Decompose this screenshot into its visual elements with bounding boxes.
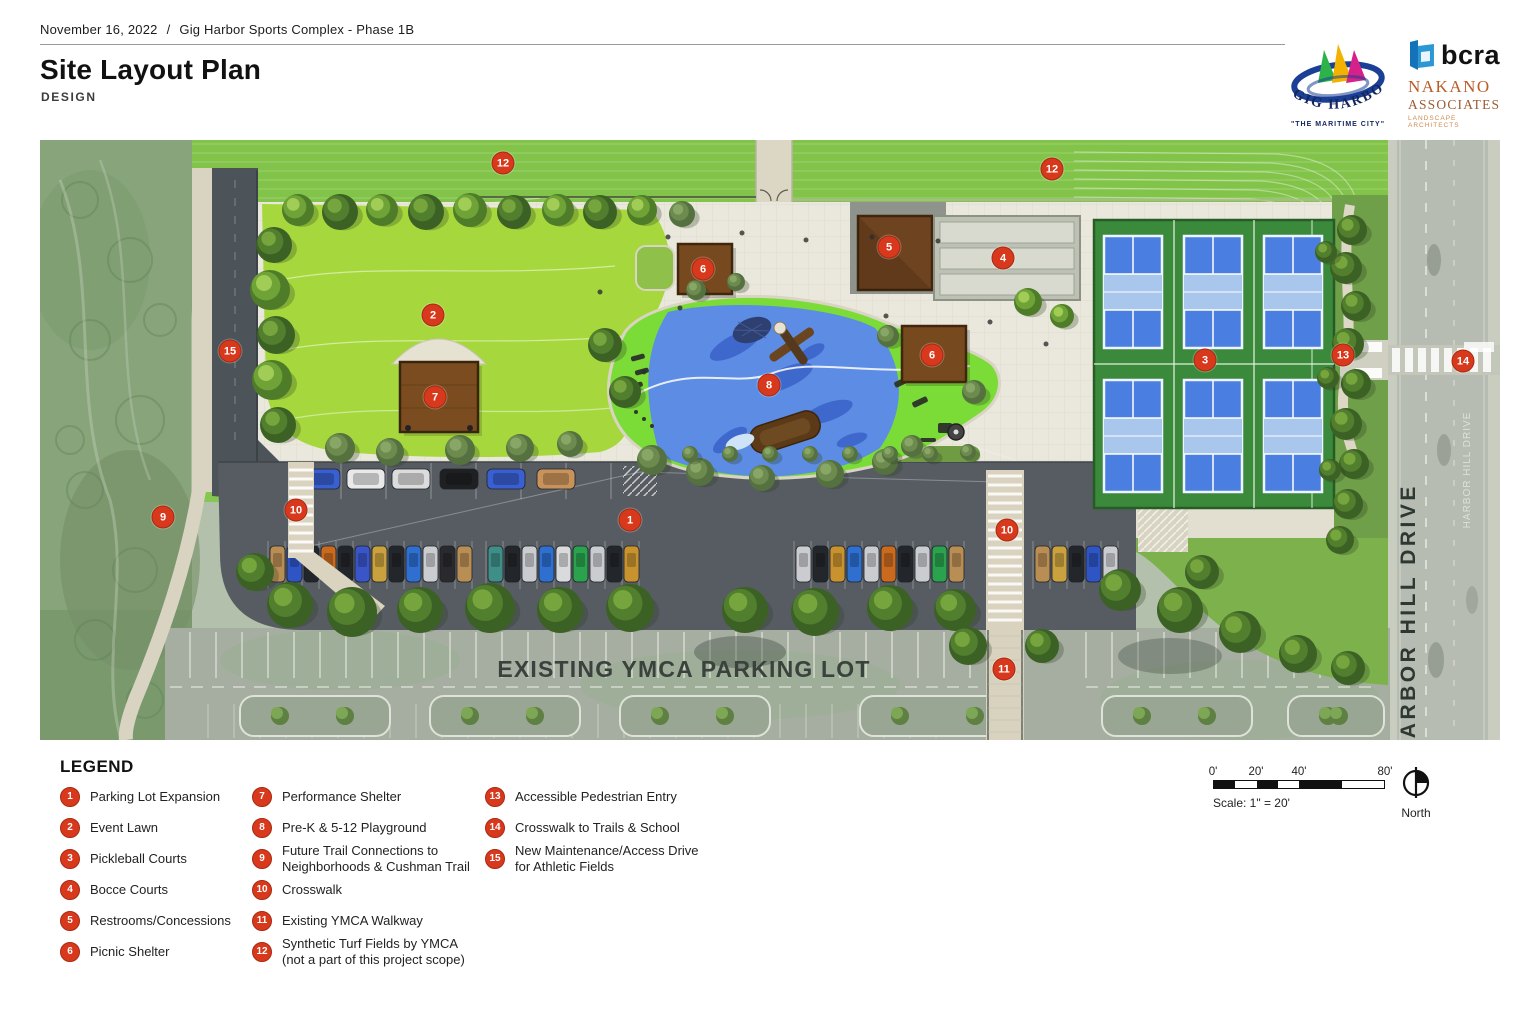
- legend-badge-8: 8: [252, 818, 272, 838]
- legend-item-8: 8Pre-K & 5-12 Playground: [252, 812, 470, 843]
- restrooms-building: [850, 202, 946, 294]
- legend-label-14: Crosswalk to Trails & School: [515, 820, 680, 836]
- legend-badge-13: 13: [485, 787, 505, 807]
- legend-item-15: 15New Maintenance/Access Drivefor Athlet…: [485, 843, 699, 874]
- north-arrow: North: [1396, 766, 1436, 820]
- picnic-shelter-east: [902, 326, 970, 386]
- legend-label-12: Synthetic Turf Fields by YMCA(not a part…: [282, 936, 465, 967]
- ymca-lot-label: EXISTING YMCA PARKING LOT: [497, 656, 870, 682]
- header-rule: [40, 44, 1285, 45]
- legend-label-9: Future Trail Connections toNeighborhoods…: [282, 843, 470, 874]
- legend-label-4: Bocce Courts: [90, 882, 168, 898]
- scale-tick-3: 80': [1378, 766, 1393, 778]
- legend-label-6: Picnic Shelter: [90, 944, 169, 960]
- scale-ticks: 0'20'40'80': [1213, 766, 1385, 780]
- legend-label-7: Performance Shelter: [282, 789, 401, 805]
- nakano-logo-name: NAKANO: [1408, 78, 1500, 97]
- legend-badge-12: 12: [252, 942, 272, 962]
- header-date: November 16, 2022: [40, 22, 158, 37]
- scale-tick-0: 0': [1209, 766, 1218, 778]
- legend-label-15: New Maintenance/Access Drivefor Athletic…: [515, 843, 699, 874]
- legend-badge-14: 14: [485, 818, 505, 838]
- legend-item-5: 5Restrooms/Concessions: [60, 905, 231, 936]
- north-arrow-icon: [1399, 766, 1433, 800]
- bocce-courts-area: [934, 216, 1080, 300]
- bcra-logo-icon: [1408, 40, 1436, 70]
- legend-badge-6: 6: [60, 942, 80, 962]
- scale-bar-graphic: [1213, 780, 1385, 789]
- legend-column-1: 1Parking Lot Expansion2Event Lawn3Pickle…: [60, 781, 231, 967]
- legend-item-11: 11Existing YMCA Walkway: [252, 905, 470, 936]
- gig-harbor-logo: GIG HARBOR "THE MARITIME CITY": [1286, 40, 1390, 137]
- legend-badge-4: 4: [60, 880, 80, 900]
- legend-badge-2: 2: [60, 818, 80, 838]
- legend-badge-7: 7: [252, 787, 272, 807]
- legend-label-2: Event Lawn: [90, 820, 158, 836]
- pickleball-courts-area: [1094, 220, 1334, 508]
- nakano-logo-name2: ASSOCIATES: [1408, 97, 1500, 113]
- legend-badge-1: 1: [60, 787, 80, 807]
- legend-item-6: 6Picnic Shelter: [60, 936, 231, 967]
- legend-badge-15: 15: [485, 849, 505, 869]
- road-label-small: HARBOR HILL DRIVE: [1462, 412, 1473, 529]
- scale-tick-2: 40': [1292, 766, 1307, 778]
- ymca-walkway: [986, 470, 1024, 740]
- legend-column-2: 7Performance Shelter8Pre-K & 5-12 Playgr…: [252, 781, 470, 967]
- legend-label-11: Existing YMCA Walkway: [282, 913, 423, 929]
- gig-harbor-logo-icon: GIG HARBOR "THE MARITIME CITY": [1286, 40, 1390, 132]
- bcra-logo-name: bcra: [1441, 42, 1500, 69]
- legend-item-2: 2Event Lawn: [60, 812, 231, 843]
- scale-bar: 0'20'40'80' Scale: 1" = 20': [1213, 766, 1385, 810]
- ymca-parking-area: EXISTING YMCA PARKING LOT: [165, 628, 1390, 740]
- header-divider: /: [167, 22, 171, 37]
- legend-item-12: 12Synthetic Turf Fields by YMCA(not a pa…: [252, 936, 470, 967]
- legend-item-7: 7Performance Shelter: [252, 781, 470, 812]
- page-subtitle: DESIGN: [41, 90, 97, 104]
- performance-shelter-building: [392, 339, 486, 436]
- legend-item-3: 3Pickleball Courts: [60, 843, 231, 874]
- legend-badge-9: 9: [252, 849, 272, 869]
- site-plan-drawing: EXISTING YMCA PARKING LOT: [40, 140, 1500, 740]
- legend-title: LEGEND: [60, 757, 134, 777]
- legend-badge-10: 10: [252, 880, 272, 900]
- road-label: HARBOR HILL DRIVE: [1397, 483, 1420, 740]
- legend-label-13: Accessible Pedestrian Entry: [515, 789, 677, 805]
- picnic-shelter-north: [636, 244, 736, 298]
- legend-label-10: Crosswalk: [282, 882, 342, 898]
- legend-label-8: Pre-K & 5-12 Playground: [282, 820, 427, 836]
- legend-item-13: 13Accessible Pedestrian Entry: [485, 781, 699, 812]
- legend-item-14: 14Crosswalk to Trails & School: [485, 812, 699, 843]
- legend-item-9: 9Future Trail Connections toNeighborhood…: [252, 843, 470, 874]
- scale-tick-1: 20': [1249, 766, 1264, 778]
- legend-item-4: 4Bocce Courts: [60, 874, 231, 905]
- north-label: North: [1396, 806, 1436, 820]
- legend-badge-5: 5: [60, 911, 80, 931]
- legend-label-5: Restrooms/Concessions: [90, 913, 231, 929]
- bcra-nakano-logos: bcra NAKANO ASSOCIATES LANDSCAPE ARCHITE…: [1408, 40, 1500, 129]
- nakano-logo-tagline: LANDSCAPE ARCHITECTS: [1408, 115, 1500, 129]
- legend-item-10: 10Crosswalk: [252, 874, 470, 905]
- legend-label-3: Pickleball Courts: [90, 851, 187, 867]
- page-title: Site Layout Plan: [40, 54, 261, 86]
- turf-access-path: [756, 140, 792, 202]
- legend-badge-3: 3: [60, 849, 80, 869]
- legend-badge-11: 11: [252, 911, 272, 931]
- legend-column-3: 13Accessible Pedestrian Entry14Crosswalk…: [485, 781, 699, 874]
- legend-item-1: 1Parking Lot Expansion: [60, 781, 231, 812]
- header-meta: November 16, 2022/Gig Harbor Sports Comp…: [40, 22, 414, 37]
- header-project: Gig Harbor Sports Complex - Phase 1B: [179, 22, 414, 37]
- legend-label-1: Parking Lot Expansion: [90, 789, 220, 805]
- scale-label: Scale: 1" = 20': [1213, 796, 1385, 810]
- gig-harbor-logo-tagline: "THE MARITIME CITY": [1291, 121, 1385, 128]
